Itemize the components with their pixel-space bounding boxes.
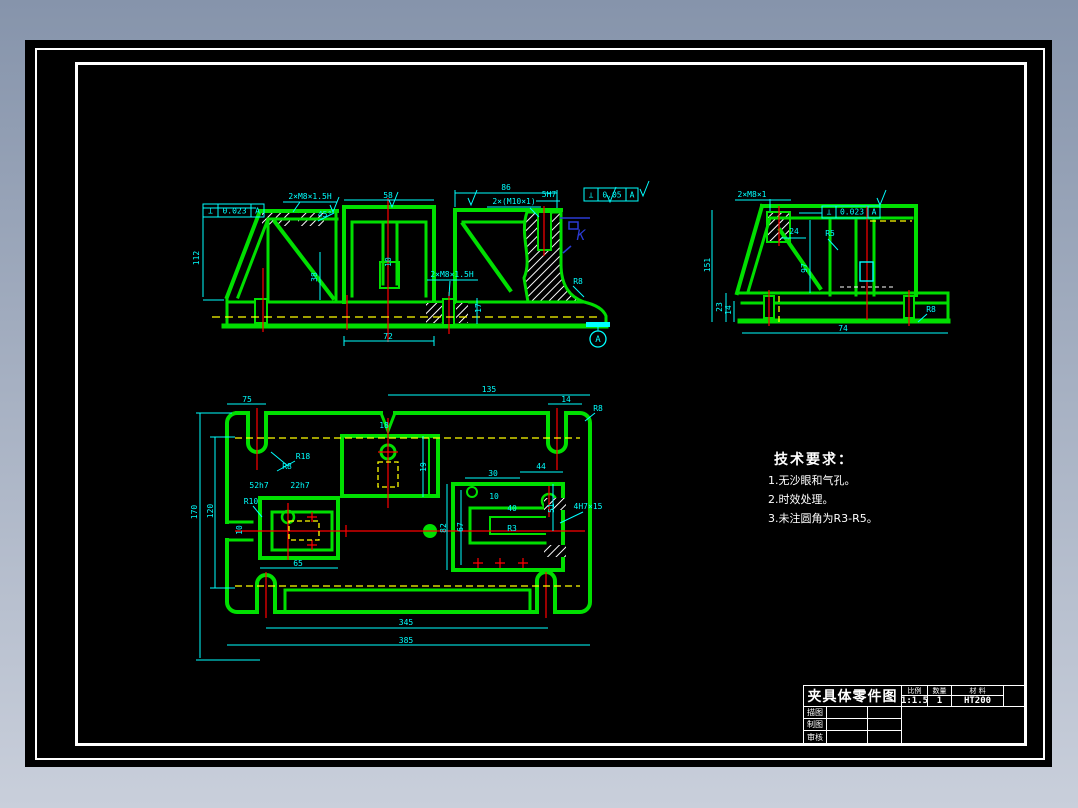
material-value: HT200 [952,696,1004,707]
title-block-empty-cell [868,731,902,744]
scale-value: 1:1.5 [902,696,928,707]
row-label-drafting: 制图 [804,719,827,731]
scale-header: 比例 [902,686,928,696]
title-block-empty-cell [868,707,902,719]
row-label-checking: 审核 [804,731,827,744]
title-block-empty-cell [827,731,868,744]
tech-requirements: 技术要求： 1.无沙眼和气孔。2.时效处理。3.未注圆角为R3-R5。 [768,449,938,526]
tech-requirements-title: 技术要求： [774,449,938,469]
quantity-header: 数量 [928,686,952,696]
title-block-notes-area [902,707,1024,744]
sheet-inner-frame [75,62,1027,746]
title-block: 夹具体零件图 比例 数量 材 料 1:1.5 1 HT200 描图 制图 审核 [803,685,1025,745]
drawing-title: 夹具体零件图 [804,686,902,707]
tech-req-item: 3.未注圆角为R3-R5。 [768,510,938,526]
quantity-value: 1 [928,696,952,707]
title-block-empty-cell [1004,686,1024,707]
title-block-empty-cell [868,719,902,731]
cad-drawing-page: { "colors":{ "background_top":"#8694ab",… [0,0,1078,808]
tech-req-item: 2.时效处理。 [768,491,938,507]
material-header: 材 料 [952,686,1004,696]
tech-req-item: 1.无沙眼和气孔。 [768,472,938,488]
title-block-empty-cell [827,719,868,731]
tech-requirements-list: 1.无沙眼和气孔。2.时效处理。3.未注圆角为R3-R5。 [768,472,938,526]
title-block-empty-cell [827,707,868,719]
row-label-tracing: 描图 [804,707,827,719]
